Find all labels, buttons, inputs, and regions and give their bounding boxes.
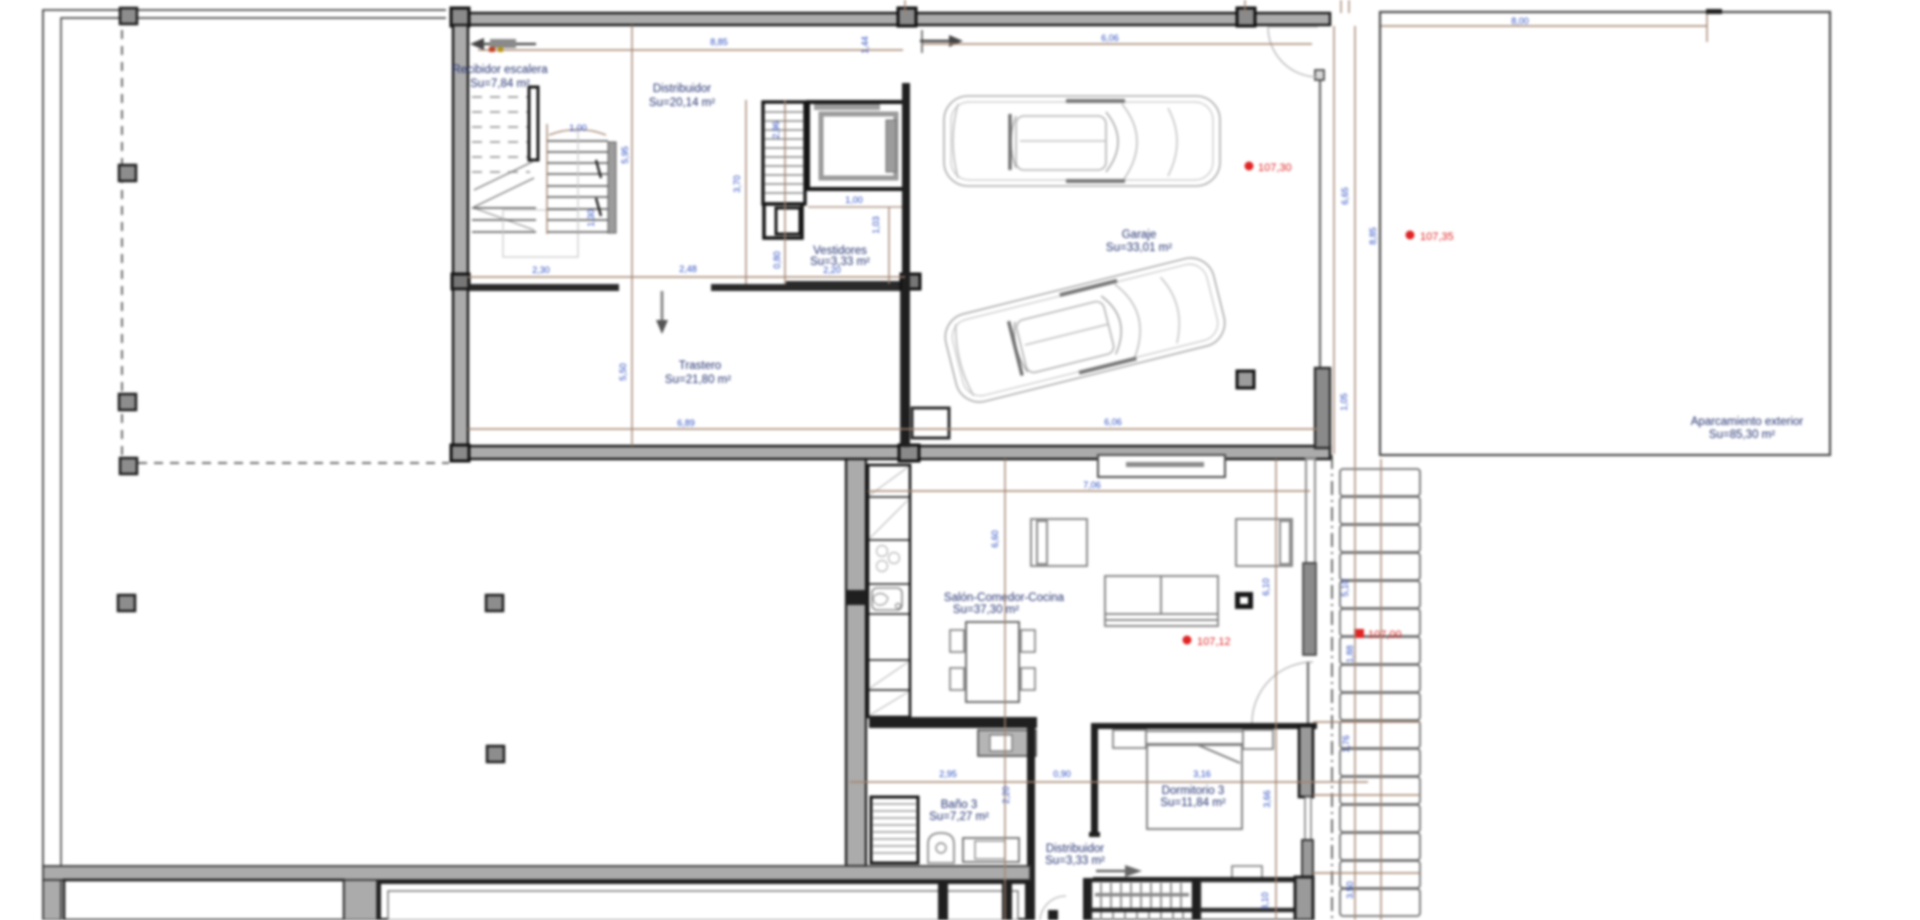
svg-text:0,80: 0,80 — [772, 251, 782, 269]
svg-text:107,30: 107,30 — [1258, 162, 1292, 174]
svg-text:Su=37,30 m²: Su=37,30 m² — [953, 604, 1019, 616]
svg-text:1,03: 1,03 — [871, 216, 881, 234]
svg-text:1,76: 1,76 — [1341, 735, 1351, 753]
svg-text:6,06: 6,06 — [1104, 417, 1122, 427]
svg-text:1,05: 1,05 — [1339, 393, 1349, 411]
svg-text:1,88: 1,88 — [1345, 645, 1355, 663]
svg-text:8,00: 8,00 — [1511, 16, 1529, 26]
svg-text:1,00: 1,00 — [569, 123, 587, 133]
svg-text:0,90: 0,90 — [1053, 769, 1071, 779]
svg-text:8,85: 8,85 — [710, 37, 728, 47]
svg-text:Salón-Comedor-Cocina: Salón-Comedor-Cocina — [944, 592, 1065, 604]
svg-text:Su=11,84 m²: Su=11,84 m² — [1160, 797, 1225, 809]
svg-text:Garaje: Garaje — [1122, 229, 1157, 241]
svg-text:5,50: 5,50 — [618, 363, 628, 381]
svg-text:3,50: 3,50 — [1345, 881, 1355, 899]
svg-text:2,96: 2,96 — [771, 121, 781, 139]
svg-text:Recibidor escalera: Recibidor escalera — [452, 64, 548, 76]
svg-text:2,48: 2,48 — [679, 264, 697, 274]
svg-text:Aparcamiento exterior: Aparcamiento exterior — [1691, 416, 1804, 428]
svg-text:3,16: 3,16 — [1193, 769, 1211, 779]
svg-text:8,85: 8,85 — [1368, 227, 1378, 245]
svg-text:Su=7,27 m²: Su=7,27 m² — [929, 811, 989, 823]
svg-text:7,06: 7,06 — [1083, 480, 1101, 490]
svg-text:Dormitorio 3: Dormitorio 3 — [1162, 785, 1225, 797]
svg-text:2,95: 2,95 — [939, 769, 957, 779]
svg-text:107,35: 107,35 — [1420, 231, 1454, 243]
svg-text:1,00: 1,00 — [845, 195, 863, 205]
svg-text:3,70: 3,70 — [732, 175, 742, 193]
svg-text:6,60: 6,60 — [990, 530, 1000, 548]
svg-text:Su=33,01 m²: Su=33,01 m² — [1106, 242, 1172, 254]
svg-text:107,12: 107,12 — [1197, 636, 1231, 648]
svg-text:Su=20,14 m²: Su=20,14 m² — [649, 97, 715, 109]
svg-text:3,10: 3,10 — [1260, 892, 1270, 910]
svg-text:107,00: 107,00 — [1368, 629, 1402, 641]
svg-text:Trastero: Trastero — [679, 360, 721, 372]
svg-text:6,65: 6,65 — [1340, 187, 1350, 205]
svg-text:Baño 3: Baño 3 — [941, 799, 977, 811]
svg-text:6,10: 6,10 — [1261, 578, 1271, 596]
svg-text:Su=85,30 m²: Su=85,30 m² — [1709, 429, 1775, 441]
svg-text:6,06: 6,06 — [1101, 33, 1119, 43]
svg-text:5,95: 5,95 — [620, 146, 630, 164]
svg-text:3,66: 3,66 — [1262, 790, 1272, 808]
svg-text:5,10: 5,10 — [1340, 579, 1350, 597]
svg-text:2,20: 2,20 — [1001, 786, 1011, 804]
svg-text:Su=7,84 m²: Su=7,84 m² — [470, 78, 530, 90]
svg-text:6,89: 6,89 — [677, 418, 695, 428]
svg-text:Su=3,33 m²: Su=3,33 m² — [1045, 855, 1105, 867]
svg-text:1,44: 1,44 — [860, 36, 870, 54]
svg-text:2,20: 2,20 — [823, 265, 841, 275]
svg-text:Distribuidor: Distribuidor — [653, 83, 711, 95]
svg-text:1,30: 1,30 — [586, 209, 596, 227]
svg-text:Su=21,80 m²: Su=21,80 m² — [665, 374, 731, 386]
svg-text:2,30: 2,30 — [532, 265, 550, 275]
svg-text:Distribuidor: Distribuidor — [1046, 843, 1104, 855]
